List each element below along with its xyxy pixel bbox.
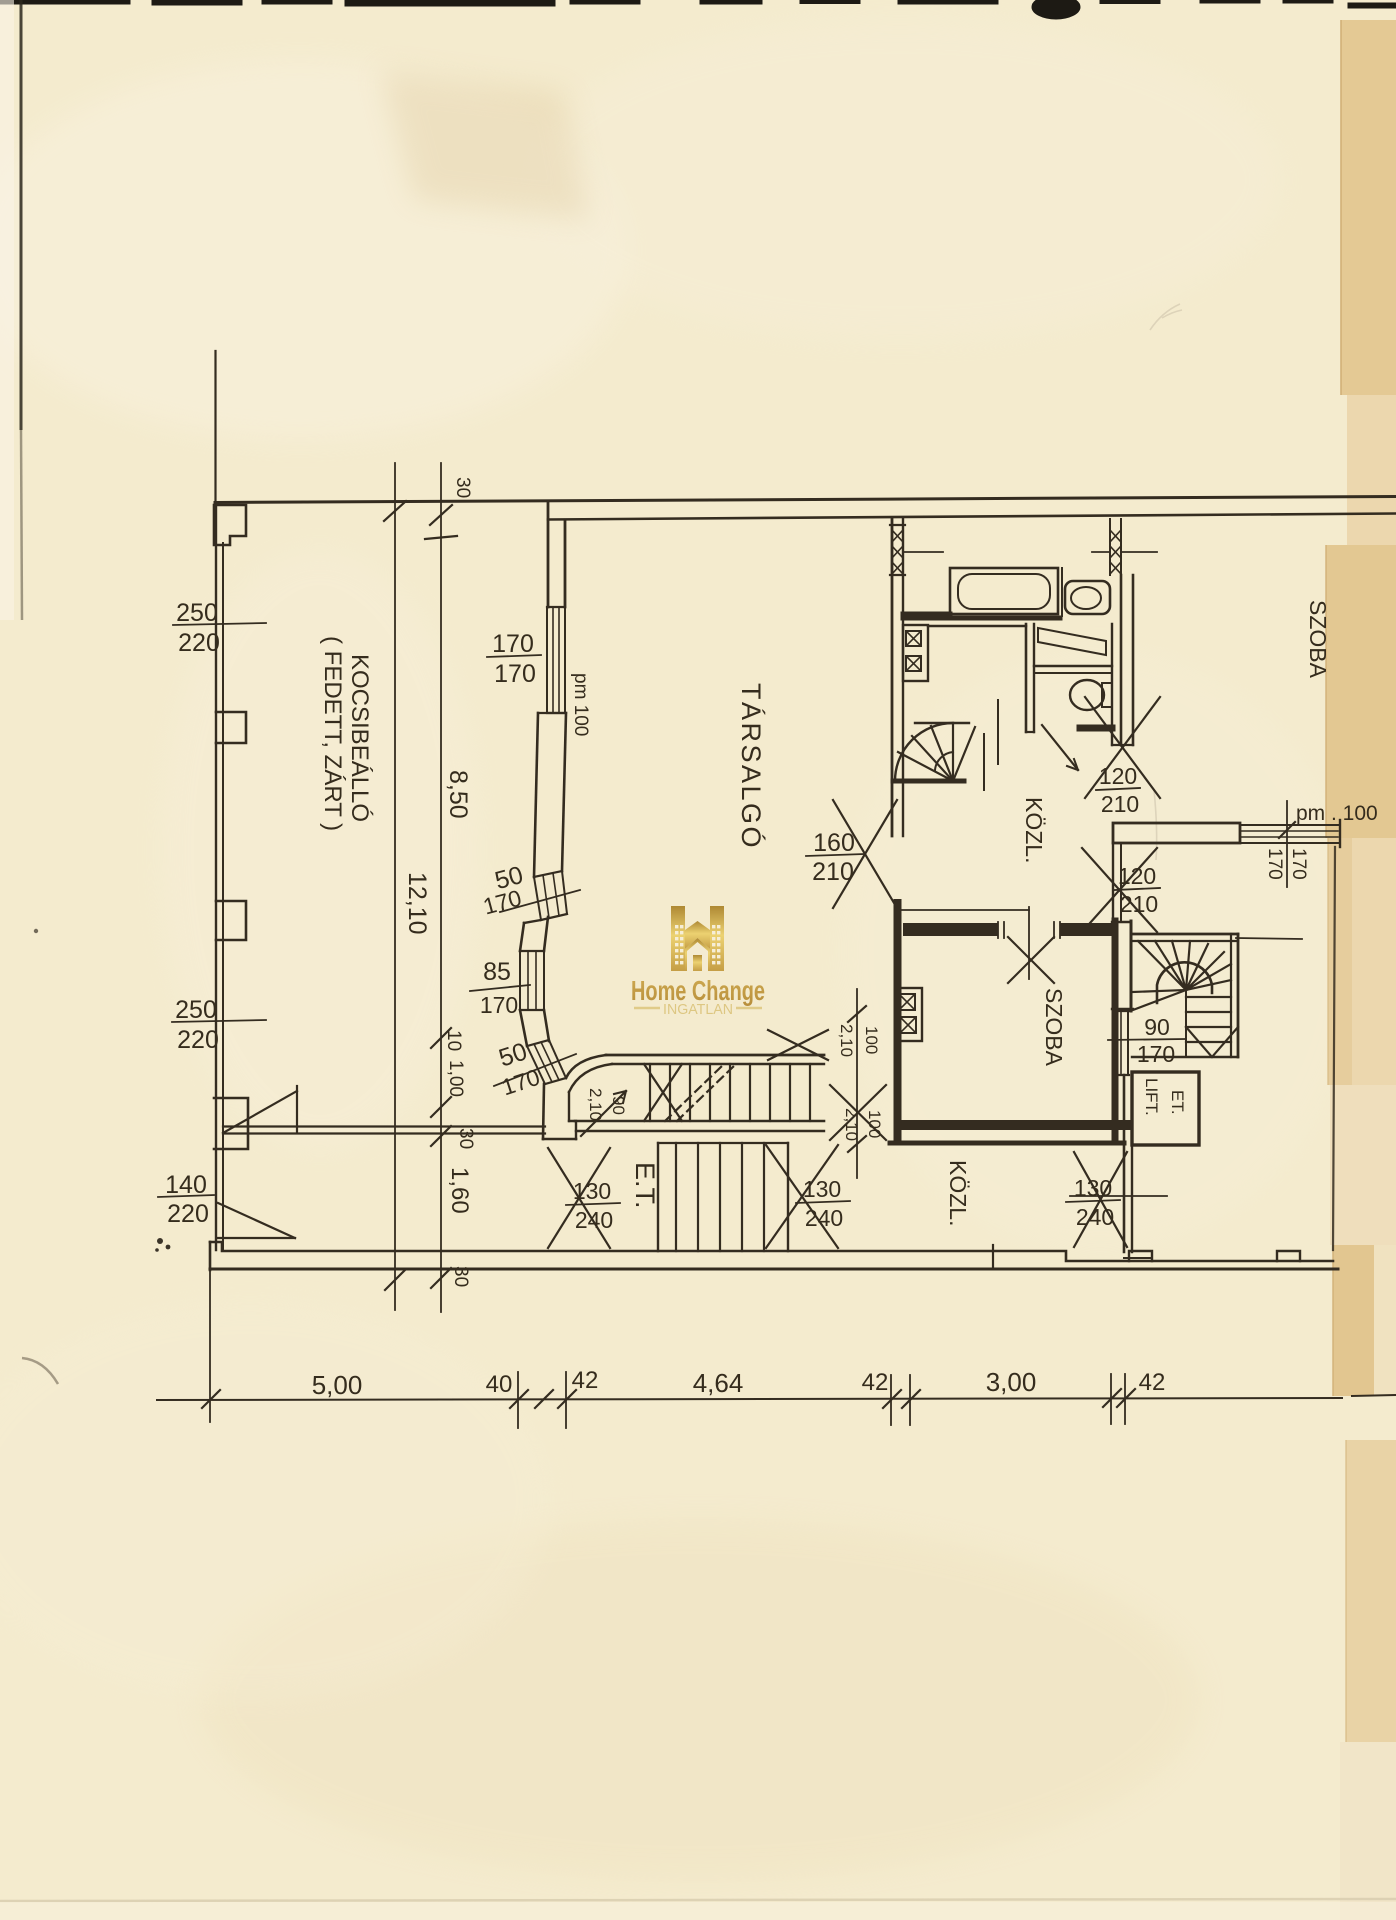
svg-text:pm . 100: pm . 100 [1296, 802, 1378, 825]
svg-text:12,10: 12,10 [403, 872, 431, 935]
svg-text:220: 220 [177, 1026, 219, 1054]
svg-text:120: 120 [1099, 763, 1137, 789]
svg-text:210: 210 [812, 858, 854, 886]
svg-text:LIFT.: LIFT. [1142, 1078, 1161, 1116]
svg-text:( FEDETT, ZÁRT ): ( FEDETT, ZÁRT ) [319, 636, 346, 831]
svg-text:100: 100 [862, 1026, 881, 1054]
svg-text:8,50: 8,50 [444, 770, 472, 819]
svg-text:ET.: ET. [1168, 1090, 1187, 1115]
svg-text:pm 100: pm 100 [570, 673, 591, 736]
svg-text:210: 210 [1101, 791, 1139, 817]
svg-text:KÖZL.: KÖZL. [945, 1160, 971, 1226]
svg-text:5,00: 5,00 [312, 1370, 363, 1400]
svg-text:220: 220 [178, 629, 220, 657]
svg-text:250: 250 [175, 996, 217, 1024]
svg-text:120: 120 [1118, 863, 1156, 889]
svg-text:40: 40 [486, 1371, 513, 1398]
svg-text:240: 240 [805, 1205, 843, 1231]
svg-text:240: 240 [1076, 1204, 1114, 1230]
svg-text:E.T.: E.T. [630, 1162, 660, 1209]
svg-text:170: 170 [494, 660, 536, 688]
svg-text:1,60: 1,60 [446, 1167, 473, 1214]
svg-text:130: 130 [803, 1176, 841, 1202]
svg-text:42: 42 [1139, 1369, 1166, 1396]
svg-text:KOCSIBEÁLLÓ: KOCSIBEÁLLÓ [346, 654, 373, 822]
svg-text:170: 170 [480, 992, 518, 1018]
svg-text:INGATLAN: INGATLAN [663, 1002, 733, 1018]
svg-text:30: 30 [450, 1266, 471, 1287]
svg-text:170: 170 [1137, 1041, 1175, 1067]
svg-text:90: 90 [609, 1096, 628, 1115]
svg-text:1,00: 1,00 [445, 1060, 466, 1097]
svg-text:3,00: 3,00 [986, 1367, 1037, 1397]
svg-text:2,10: 2,10 [837, 1024, 856, 1057]
svg-text:140: 140 [165, 1171, 207, 1199]
svg-text:30: 30 [452, 477, 473, 498]
svg-text:90: 90 [1144, 1014, 1170, 1040]
svg-text:42: 42 [572, 1367, 599, 1394]
svg-text:SZOBA: SZOBA [1041, 988, 1067, 1067]
svg-text:170: 170 [1288, 848, 1309, 880]
svg-text:210: 210 [1120, 891, 1158, 917]
svg-text:2,10: 2,10 [842, 1108, 861, 1141]
svg-text:4,64: 4,64 [693, 1368, 744, 1398]
svg-text:KÖZL.: KÖZL. [1021, 797, 1047, 863]
svg-text:TÁRSALGÓ: TÁRSALGÓ [736, 683, 767, 850]
svg-text:85: 85 [483, 958, 511, 986]
svg-text:SZOBA: SZOBA [1305, 600, 1331, 679]
svg-text:170: 170 [1264, 848, 1285, 880]
svg-text:130: 130 [573, 1178, 611, 1204]
svg-text:240: 240 [575, 1207, 613, 1233]
svg-text:160: 160 [813, 829, 855, 857]
svg-text:170: 170 [492, 630, 534, 658]
svg-text:42: 42 [862, 1369, 889, 1396]
svg-text:220: 220 [167, 1200, 209, 1228]
svg-text:10: 10 [443, 1030, 464, 1051]
svg-text:2,10: 2,10 [586, 1088, 605, 1121]
svg-text:250: 250 [176, 599, 218, 627]
svg-text:100: 100 [865, 1110, 884, 1138]
svg-text:30: 30 [455, 1128, 476, 1149]
svg-text:130: 130 [1074, 1175, 1112, 1201]
